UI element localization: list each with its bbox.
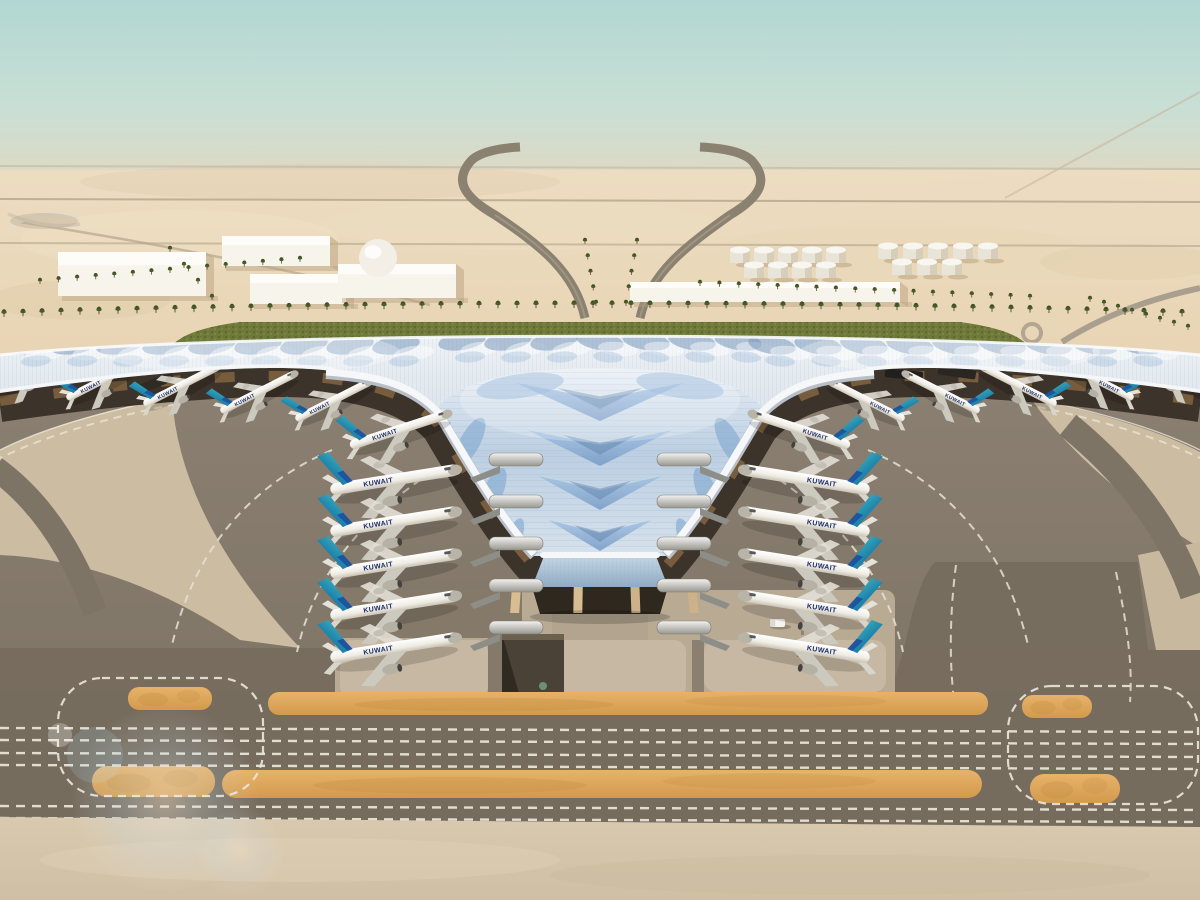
scene-svg: KUWAITKUWAITKUWAITKUWAITKUWAITKUWAITKUWA… — [0, 0, 1200, 900]
painted-strip — [222, 770, 982, 798]
facade-column — [630, 587, 640, 613]
facade-column — [573, 587, 582, 613]
painted-strip — [1022, 695, 1092, 718]
painted-strip — [1030, 774, 1120, 803]
painted-strip — [268, 692, 988, 715]
white-building — [222, 236, 342, 271]
airport-aerial-rendering: KUWAITKUWAITKUWAITKUWAITKUWAITKUWAITKUWA… — [0, 0, 1200, 900]
white-building — [630, 282, 912, 307]
white-building — [58, 252, 218, 301]
